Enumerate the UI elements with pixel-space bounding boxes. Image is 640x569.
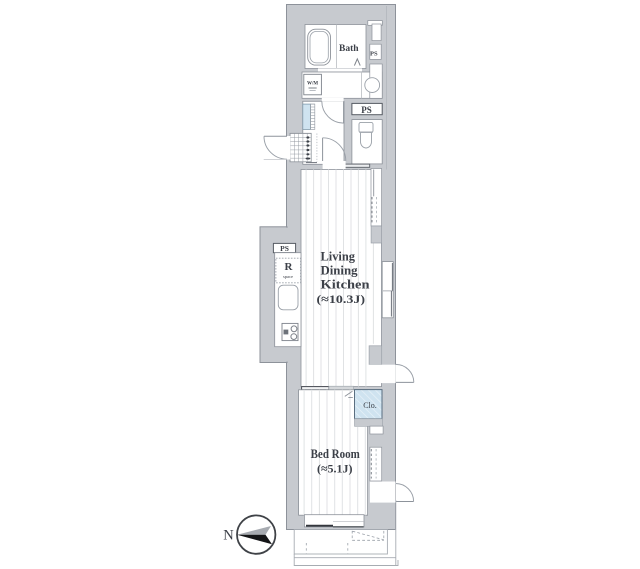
svg-text:Living: Living: [321, 249, 356, 263]
svg-text:PS: PS: [361, 105, 372, 115]
svg-text:N: N: [223, 528, 234, 544]
svg-text:space: space: [283, 274, 293, 279]
svg-text:Kitchen: Kitchen: [321, 278, 370, 292]
svg-text:R: R: [285, 261, 294, 273]
svg-text:PS: PS: [370, 51, 378, 58]
svg-text:(≈10.3J): (≈10.3J): [317, 292, 366, 306]
svg-text:W/M: W/M: [307, 82, 318, 87]
svg-text:Bath: Bath: [339, 44, 359, 54]
svg-text:Clo.: Clo.: [363, 401, 377, 410]
svg-text:(≈5.1J): (≈5.1J): [317, 461, 353, 475]
svg-text:PS: PS: [280, 244, 289, 253]
svg-text:Dining: Dining: [321, 264, 359, 278]
svg-text:Bed Room: Bed Room: [311, 447, 361, 461]
